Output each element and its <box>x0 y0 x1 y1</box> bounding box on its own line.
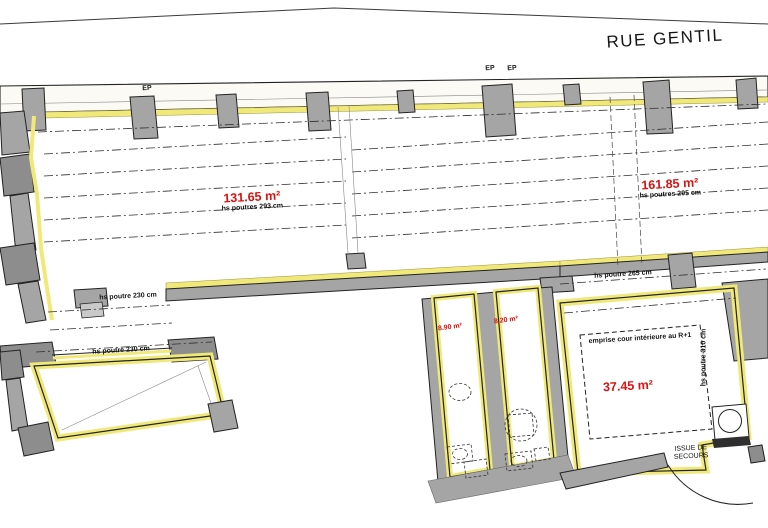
downspout-label: EP <box>503 65 521 73</box>
wall-pier <box>346 253 366 269</box>
corridor-column <box>668 253 696 289</box>
beam-line <box>44 159 346 176</box>
beam-line <box>44 225 346 242</box>
facade-column <box>130 96 158 139</box>
door-jamb-block <box>748 445 765 463</box>
facade-column <box>643 80 673 134</box>
room-wall-block <box>208 400 238 432</box>
downspout-label: EP <box>481 65 499 73</box>
leader-line <box>349 106 358 253</box>
leader-line <box>338 107 348 253</box>
west-wall-pier <box>0 243 40 285</box>
beam-line <box>352 210 768 238</box>
floor-plan-drawing <box>0 0 768 528</box>
room-wall-block <box>18 422 54 456</box>
toilet-bowl <box>453 449 468 460</box>
west-wall-pier <box>0 154 34 196</box>
lower-left-room <box>0 337 238 456</box>
beam-line <box>352 122 768 150</box>
central-interior-wall <box>74 247 768 318</box>
dimension-line <box>198 366 212 406</box>
facade-column <box>482 84 516 137</box>
west-wall <box>0 111 52 323</box>
facade-column <box>397 90 415 113</box>
room-wall-block <box>0 350 24 380</box>
beam-line <box>44 137 346 154</box>
floor-plan: RUE GENTIL EP EP EP 131.65 m² hs poutres… <box>0 0 768 528</box>
beam-line <box>50 323 172 330</box>
facade-column <box>563 84 581 105</box>
west-wall-segment <box>18 281 46 323</box>
beam-line <box>352 144 768 172</box>
downspout-label: EP <box>138 85 156 93</box>
emergency-exit-label: ISSUE DE SECOURS <box>669 444 714 462</box>
beam-line <box>48 305 170 312</box>
room-lining <box>34 356 224 438</box>
street-edge-line <box>0 8 768 24</box>
facade-column <box>306 92 331 131</box>
sink-fixture <box>449 384 471 401</box>
room-wall <box>6 378 28 431</box>
facade-column <box>216 94 239 128</box>
